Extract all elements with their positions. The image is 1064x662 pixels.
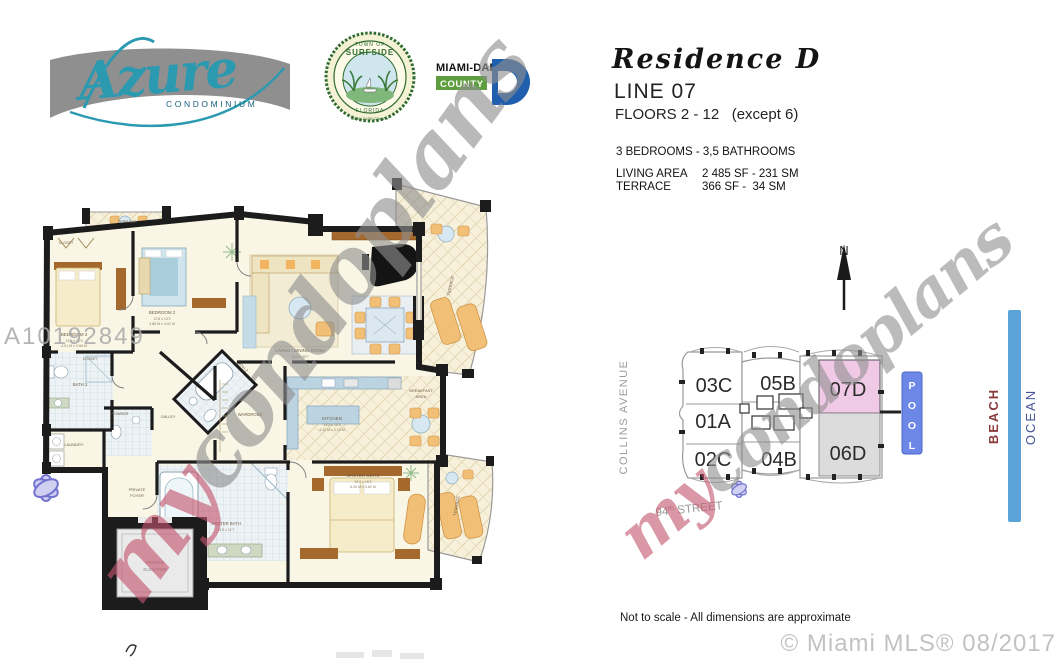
bed3-dresser xyxy=(116,268,126,310)
bed2-pillow xyxy=(166,250,182,257)
mls-number-watermark: A10192849 xyxy=(4,323,145,350)
nightstand xyxy=(312,478,324,491)
sofa-pillow xyxy=(260,260,269,269)
unit-06d-label: 06D xyxy=(830,443,867,465)
bedroom2-dims-m: 3.86 M x 4.01 M xyxy=(149,322,175,326)
beach-label: BEACH xyxy=(986,388,1001,444)
bedroom2-label: BEDROOM 2 xyxy=(149,310,176,315)
terrace-top-label: TERRACE xyxy=(118,220,137,224)
sink xyxy=(217,546,227,554)
galley-label: GALLEY xyxy=(161,415,176,419)
master-label: MASTER SUITE xyxy=(346,473,379,478)
cutoff-mark xyxy=(126,645,136,656)
dryer xyxy=(49,451,64,466)
bedroom2-dims-ft: 12'8 x 13'2 xyxy=(153,317,170,321)
bed2-desk xyxy=(192,298,226,308)
kitchen-dims-ft: 14'2 x 10'2 xyxy=(323,423,340,427)
floor-plan: BATH 2 xyxy=(4,16,552,659)
collins-avenue-label: COLLINS AVENUE xyxy=(618,360,630,475)
closet-top-label: CLOSET xyxy=(59,241,74,245)
sink xyxy=(132,416,140,424)
kitchen-island xyxy=(307,406,359,424)
bed3-pillow xyxy=(59,271,75,280)
mycondoplans-watermark-small: mycondoplans xyxy=(604,201,1028,574)
kitchen-label: KITCHEN xyxy=(322,416,342,421)
bed2-seat xyxy=(139,258,150,294)
master-dims-m: 6.20 M x 4.62 M xyxy=(350,485,376,489)
nightstand xyxy=(398,478,410,491)
floor-plan-sheet: Azure CONDOMINIUM TOWN OF SURFSIDE FLORI… xyxy=(0,0,1064,662)
powder-label: POWDER xyxy=(111,412,128,416)
toilet xyxy=(54,366,68,378)
breakfast-label-1: BREAKFAST xyxy=(409,388,433,393)
pool-letter-o2: O xyxy=(908,420,916,432)
ocean-label: OCEAN xyxy=(1023,389,1038,445)
breakfast-label-2: AREA xyxy=(416,394,427,399)
bath3-floor xyxy=(47,352,113,430)
site-plan: N COLLINS AVENUE 94th STREET xyxy=(604,201,1038,574)
bed3-pillow xyxy=(79,271,95,280)
sink xyxy=(241,546,251,554)
shoreline-bar xyxy=(1008,310,1021,522)
mls-copyright: © Miami MLS® 08/2017 xyxy=(781,630,1056,658)
plans-canvas: BATH 2 xyxy=(0,0,1064,662)
unit-03c-label: 03C xyxy=(696,375,733,397)
patio-chair xyxy=(463,470,473,479)
kitchen-dims-m: 4.32 M x 3.10 M xyxy=(319,428,345,432)
pool-letter-l: L xyxy=(909,440,916,452)
bed2-pillow xyxy=(145,250,161,257)
laundry-label: LAUNDRY xyxy=(64,442,83,447)
patio-chair xyxy=(458,226,469,236)
patio-table xyxy=(446,472,458,484)
cutoff-smudges xyxy=(336,650,424,659)
pool-letter-o1: O xyxy=(908,400,916,412)
master-dresser xyxy=(395,549,420,559)
closet-hall-label: CLOSET xyxy=(83,357,98,361)
pool-letter-p: P xyxy=(908,380,915,392)
mycondoplans-trefoil-logo xyxy=(31,475,61,501)
pool-marker: P O O L xyxy=(902,372,922,454)
not-to-scale-note: Not to scale - All dimensions are approx… xyxy=(620,612,851,624)
refrigerator xyxy=(388,378,401,389)
bed2-cover xyxy=(150,258,178,296)
north-arrow: N xyxy=(837,243,851,310)
master-dims-ft: 20'4 x 15'2 xyxy=(354,480,371,484)
master-dresser xyxy=(300,548,338,559)
washer xyxy=(49,434,64,449)
bath3-label: BATH 3 xyxy=(73,382,88,387)
sink xyxy=(55,400,62,407)
cooktop xyxy=(344,379,358,387)
double-vanity xyxy=(208,544,262,557)
